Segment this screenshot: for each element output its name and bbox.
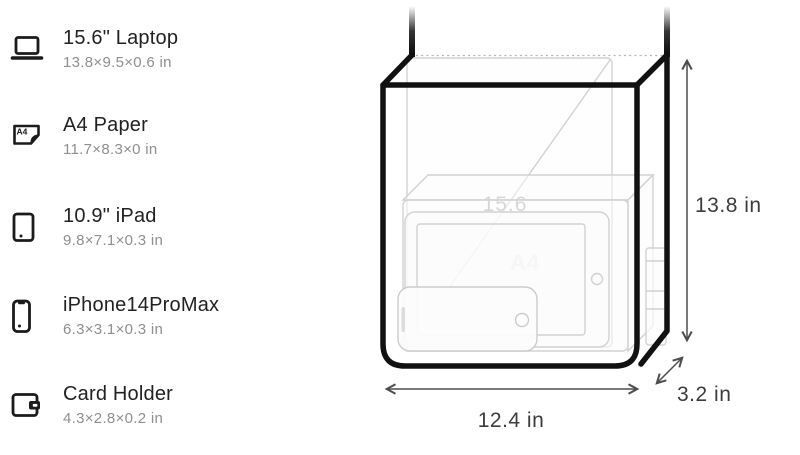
depth-dimension-arrow [657, 358, 682, 383]
ghost-iphone [398, 287, 537, 351]
depth-dimension-label: 3.2 in [677, 383, 731, 406]
size-comparison-page: { "page": { "background": "#ffffff" }, "… [0, 0, 800, 455]
bag-top-right-edge [637, 55, 667, 85]
ghost-card-holder [646, 248, 666, 345]
bag-size-diagram: A4 15.6 13.8 in 12.4 in [0, 0, 800, 455]
width-dimension-label: 12.4 in [478, 409, 545, 432]
height-dimension-label: 13.8 in [695, 194, 762, 217]
